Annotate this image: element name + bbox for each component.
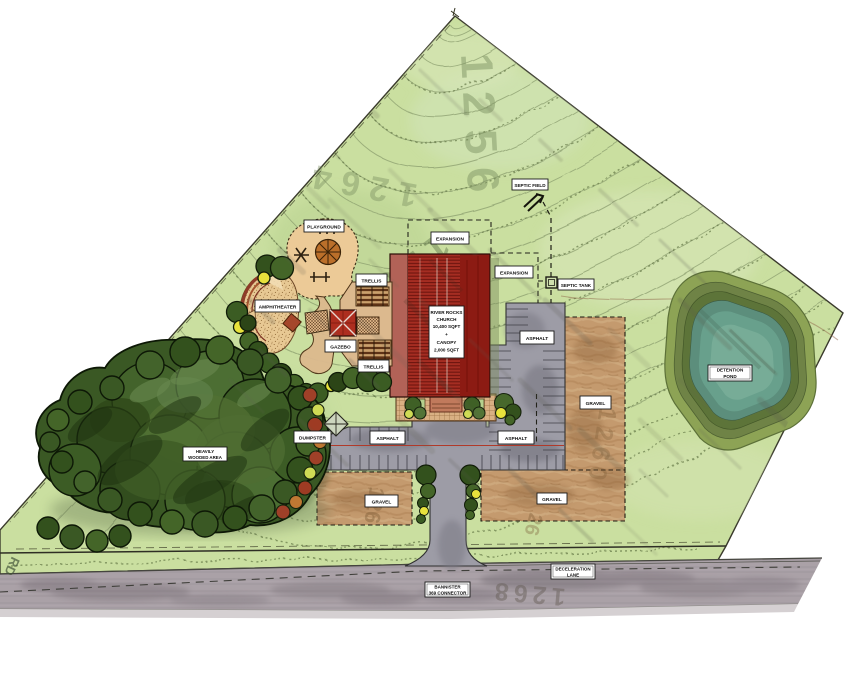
svg-text:BANNISTER: BANNISTER <box>434 585 461 590</box>
svg-text:GAZEBO: GAZEBO <box>330 344 351 350</box>
svg-text:DUMPSTER: DUMPSTER <box>299 435 326 441</box>
svg-text:EXPANSION: EXPANSION <box>436 236 464 242</box>
svg-text:GRAVEL: GRAVEL <box>372 499 392 505</box>
svg-text:+: + <box>445 332 448 337</box>
svg-text:SEPTIC FIELD: SEPTIC FIELD <box>514 183 546 188</box>
svg-text:CANOPY: CANOPY <box>437 340 457 345</box>
svg-text:DECELERATION: DECELERATION <box>555 567 590 572</box>
svg-text:PLAYGROUND: PLAYGROUND <box>307 224 341 230</box>
svg-text:1256: 1256 <box>451 52 510 207</box>
svg-text:TRELLIS: TRELLIS <box>364 364 385 370</box>
svg-text:ASPHALT: ASPHALT <box>526 336 548 342</box>
svg-text:SEPTIC TANK: SEPTIC TANK <box>561 283 592 288</box>
svg-text:HEAVILY: HEAVILY <box>196 449 214 454</box>
svg-text:LANE: LANE <box>567 573 579 578</box>
svg-text:ASPHALT: ASPHALT <box>505 436 527 442</box>
svg-text:EXPANSION: EXPANSION <box>500 270 528 276</box>
svg-text:GRAVEL: GRAVEL <box>542 497 562 503</box>
svg-text:AMPHITHEATER: AMPHITHEATER <box>259 304 297 310</box>
svg-text:369 CONNECTOR: 369 CONNECTOR <box>429 591 467 596</box>
svg-text:POND: POND <box>723 374 737 379</box>
svg-text:GRAVEL: GRAVEL <box>586 401 606 407</box>
svg-text:WOODED AREA: WOODED AREA <box>188 455 223 460</box>
svg-text:CHURCH: CHURCH <box>437 317 458 322</box>
svg-text:2,000 SQFT: 2,000 SQFT <box>434 348 459 353</box>
svg-text:DETENTION: DETENTION <box>717 368 744 373</box>
svg-text:ASPHALT: ASPHALT <box>376 436 398 442</box>
svg-text:RIVER ROCKS: RIVER ROCKS <box>431 310 463 315</box>
svg-text:TRELLIS: TRELLIS <box>362 278 383 284</box>
svg-text:10,400 SQFT: 10,400 SQFT <box>433 324 461 329</box>
